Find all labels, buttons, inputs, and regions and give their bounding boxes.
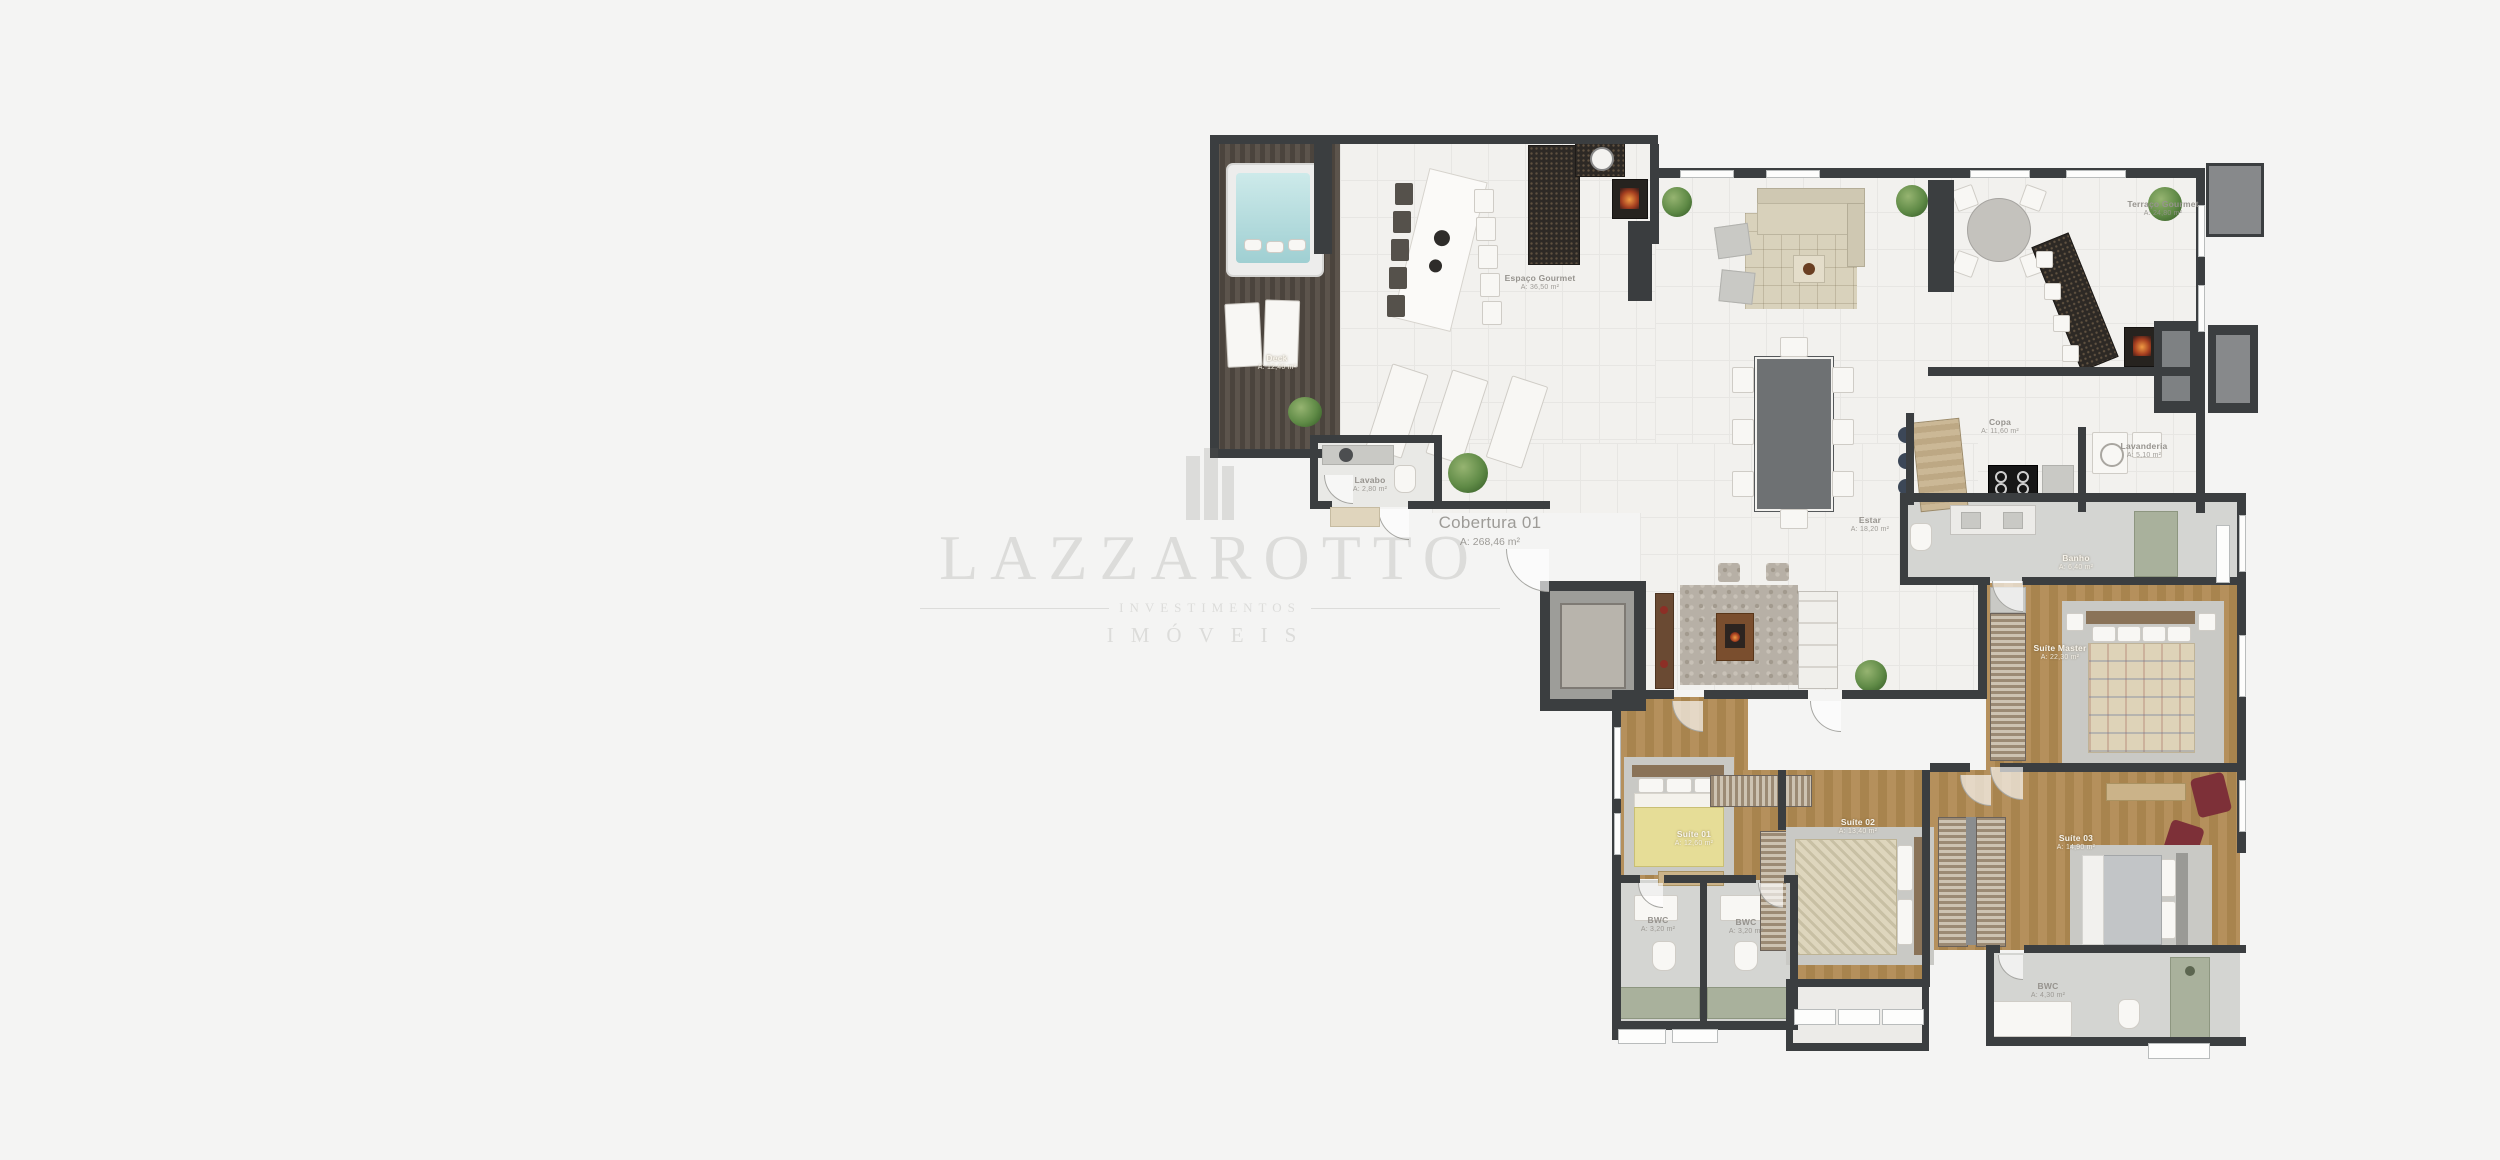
wall — [1978, 585, 1987, 697]
wall — [1786, 985, 1793, 1049]
entry-door-arc — [1378, 509, 1409, 540]
entry-mat — [1330, 507, 1380, 527]
toilet — [2118, 999, 2140, 1029]
gourmet-side-counter — [1628, 221, 1652, 301]
unit-title: Cobertura 01 A: 268,46 m² — [1439, 513, 1542, 548]
wardrobe-shelf — [1966, 817, 1976, 945]
dining-chair — [1832, 367, 1854, 393]
wall — [1210, 135, 1658, 144]
wardrobe-rack — [1938, 817, 1968, 947]
window — [1680, 170, 1734, 178]
room-label-suite-01: Suíte 01 A: 12,60 m² — [1675, 829, 1713, 848]
wall — [2024, 945, 2246, 953]
wardrobe-rack — [1976, 817, 2006, 947]
nightstand — [2198, 613, 2216, 631]
pillow — [2142, 626, 2166, 642]
coffee-table-decor — [1803, 263, 1815, 275]
exterior-box — [2206, 163, 2264, 237]
bar-stool — [2053, 315, 2070, 332]
dining-chair — [1780, 337, 1808, 357]
island-sink — [1428, 258, 1444, 274]
window — [2239, 780, 2246, 832]
wall — [1650, 144, 1659, 244]
plant — [1288, 397, 1322, 427]
toilet — [1652, 941, 1676, 971]
gourmet-chair — [1393, 211, 1411, 233]
window-sill — [1618, 1029, 1666, 1044]
gourmet-chair — [1480, 273, 1500, 297]
bar-stool — [2044, 283, 2061, 300]
wall — [1986, 945, 1994, 1045]
burner-icon — [1995, 471, 2007, 483]
wall — [1664, 875, 1756, 883]
room-label-estar: Estar A: 18,20 m² — [1851, 515, 1889, 534]
sofa-chaise — [1847, 203, 1865, 267]
suite-02-door-arc — [1810, 701, 1841, 732]
room-label-copa: Copa A: 11,60 m² — [1981, 417, 2019, 436]
spa-headrest — [1266, 241, 1284, 253]
terrace-round-table — [1967, 198, 2031, 262]
armchair — [1718, 269, 1755, 304]
dining-chair — [1832, 419, 1854, 445]
room-label-suite-03: Suíte 03 A: 14,90 m² — [2057, 833, 2095, 852]
exterior-box — [2208, 325, 2258, 413]
room-label-bwc-suite: BWC A: 4,30 m² — [2031, 981, 2065, 1000]
wall — [1900, 493, 2245, 502]
bwc-suite-vanity — [1992, 1001, 2072, 1037]
wall — [2000, 763, 2246, 772]
room-label-lavanderia: Lavanderia A: 5,10 m² — [2121, 441, 2168, 460]
window — [2066, 170, 2126, 178]
bed-suite-03 — [2082, 853, 2188, 945]
utility-shaft-inner — [2162, 331, 2190, 401]
wall — [1700, 883, 1707, 1029]
dining-chair — [1732, 471, 1754, 497]
pillow — [1666, 778, 1692, 793]
armchair — [1714, 223, 1752, 259]
bwc-cabinet — [1707, 987, 1791, 1019]
wall — [1786, 1043, 1929, 1051]
wall — [1928, 367, 2205, 376]
gourmet-chair — [1391, 239, 1409, 261]
wall — [1900, 493, 1908, 585]
closet-rack — [1990, 613, 2026, 761]
pillow — [2160, 901, 2176, 939]
sofa-seat — [1757, 203, 1851, 235]
wall — [1314, 144, 1332, 254]
wall — [1310, 501, 1332, 509]
wall — [1704, 690, 1808, 699]
room-label-deck: Deck A: 12,40 m² — [1258, 353, 1296, 372]
window — [2239, 635, 2246, 697]
dining-chair — [1732, 367, 1754, 393]
churrasqueira-grill — [1612, 179, 1648, 219]
spa-headrest — [1244, 239, 1262, 251]
sideboard-decor — [1660, 606, 1668, 614]
nightstand — [2066, 613, 2084, 631]
wall — [1900, 577, 1990, 585]
dining-table — [1755, 357, 1833, 511]
wall — [1842, 690, 1987, 699]
wall — [1778, 770, 1786, 830]
wall — [1408, 501, 1550, 509]
lavabo-basin — [1339, 448, 1353, 462]
window — [1614, 813, 1621, 855]
window — [2239, 515, 2246, 572]
fireplace-fire — [1730, 632, 1740, 642]
wall — [1612, 690, 1674, 699]
estar-shelf — [1798, 591, 1838, 689]
lavabo-toilet — [1394, 465, 1416, 493]
sideboard — [1655, 593, 1674, 689]
pillow — [2117, 626, 2141, 642]
gourmet-chair — [1387, 295, 1405, 317]
gourmet-bar-counter — [1528, 145, 1580, 265]
pillow — [2160, 859, 2176, 897]
window-sill — [1838, 1009, 1880, 1025]
grill-fire — [1620, 188, 1639, 209]
room-label-suite-02: Suíte 02 A: 13,40 m² — [1839, 817, 1877, 836]
pillow — [1638, 778, 1664, 793]
dining-chair — [1832, 471, 1854, 497]
room-label-espaco-gourmet: Espaço Gourmet A: 36,50 m² — [1505, 273, 1576, 292]
wall — [1930, 763, 1970, 772]
terrace-divider-wall — [1928, 180, 1954, 292]
room-label-terraco-gourmet: Terraço Gourmet A: 24,80 m² — [2127, 199, 2198, 218]
room-label-bwc-01: BWC A: 3,20 m² — [1641, 915, 1675, 934]
grill-fire — [2133, 336, 2151, 356]
wall — [1310, 435, 1442, 443]
plant — [1896, 185, 1928, 217]
window-sill — [1794, 1009, 1836, 1025]
fireplace-opening — [1725, 624, 1745, 648]
burner-icon — [2017, 471, 2029, 483]
wall — [1210, 135, 1219, 457]
exterior-box-inner — [2216, 335, 2250, 403]
bed-master — [2086, 611, 2195, 753]
room-label-banho-master: Banho A: 6,40 m² — [2059, 553, 2093, 572]
window — [1614, 727, 1621, 799]
room-label-bwc-02: BWC A: 3,20 m² — [1729, 917, 1763, 936]
window-sill — [1672, 1029, 1718, 1043]
wall — [1906, 413, 1914, 505]
dining-chair — [1732, 419, 1754, 445]
island-sink — [1432, 228, 1451, 247]
pouf — [1718, 563, 1740, 582]
gourmet-chair — [1389, 267, 1407, 289]
unit-area: A: 268,46 m² — [1439, 536, 1542, 548]
floor-plan: Deck A: 12,40 m² Espaço Gourmet A: 36,50… — [1210, 135, 2260, 1060]
fireplace — [1716, 613, 1754, 661]
shower — [2170, 957, 2210, 1045]
window — [2198, 205, 2205, 257]
bath-vanity — [1950, 505, 2036, 535]
wall — [1434, 435, 1442, 509]
plant — [1855, 660, 1887, 692]
toilet — [1910, 523, 1932, 551]
spa-headrest — [1288, 239, 1306, 251]
toilet — [1734, 941, 1758, 971]
gourmet-chair — [1482, 301, 1502, 325]
coffee-table — [1793, 255, 1825, 283]
oven — [2042, 465, 2074, 495]
window-sill — [2148, 1043, 2210, 1059]
pillow — [2092, 626, 2116, 642]
headboard — [2176, 853, 2188, 945]
window-sill — [1882, 1009, 1924, 1025]
wall — [1310, 435, 1318, 509]
bar-stool — [2062, 345, 2079, 362]
plant — [1448, 453, 1488, 493]
pillow — [2167, 626, 2191, 642]
pillow — [1897, 845, 1913, 891]
headboard — [2086, 611, 2195, 624]
wardrobe-rack — [1710, 775, 1812, 807]
bathtub — [2134, 511, 2178, 577]
window — [2216, 525, 2230, 583]
sideboard-decor — [1660, 660, 1668, 668]
wall — [1210, 449, 1322, 458]
sink-icon — [1961, 512, 1981, 529]
bar-stool — [2036, 251, 2053, 268]
gourmet-sink — [1590, 147, 1614, 171]
wall — [2022, 577, 2246, 585]
bed-bench — [2106, 783, 2186, 801]
pouf — [1766, 563, 1789, 581]
unit-name: Cobertura 01 — [1439, 513, 1542, 533]
sheet-fold — [2082, 855, 2104, 945]
elevator-lobby-arc — [1506, 549, 1549, 592]
pillow — [1897, 899, 1913, 945]
spa — [1226, 163, 1324, 277]
room-label-suite-master: Suíte Master A: 22,30 m² — [2034, 643, 2087, 662]
bwc-cabinet — [1618, 987, 1700, 1019]
window — [1970, 170, 2030, 178]
page: LAZZAROTTO INVESTIMENTOS IMÓVEIS — [0, 0, 2500, 1160]
gourmet-chair — [1478, 245, 1498, 269]
plant — [1662, 187, 1692, 217]
elevator-cab — [1560, 603, 1626, 689]
gourmet-chair — [1395, 183, 1413, 205]
gourmet-chair — [1474, 189, 1494, 213]
wall — [1922, 770, 1930, 985]
dining-chair — [1780, 509, 1808, 529]
window — [2198, 285, 2205, 332]
plaid-blanket — [2088, 643, 2195, 753]
wall — [1612, 875, 1640, 883]
textured-blanket — [1795, 839, 1897, 955]
lavabo-counter — [1322, 445, 1394, 465]
wall — [1786, 979, 1930, 987]
window — [1766, 170, 1820, 178]
shower-head-icon — [2185, 966, 2195, 976]
room-label-lavabo: Lavabo A: 2,80 m² — [1353, 475, 1387, 494]
bed-suite-02 — [1795, 837, 1926, 955]
sink-icon — [2003, 512, 2023, 529]
gourmet-chair — [1476, 217, 1496, 241]
